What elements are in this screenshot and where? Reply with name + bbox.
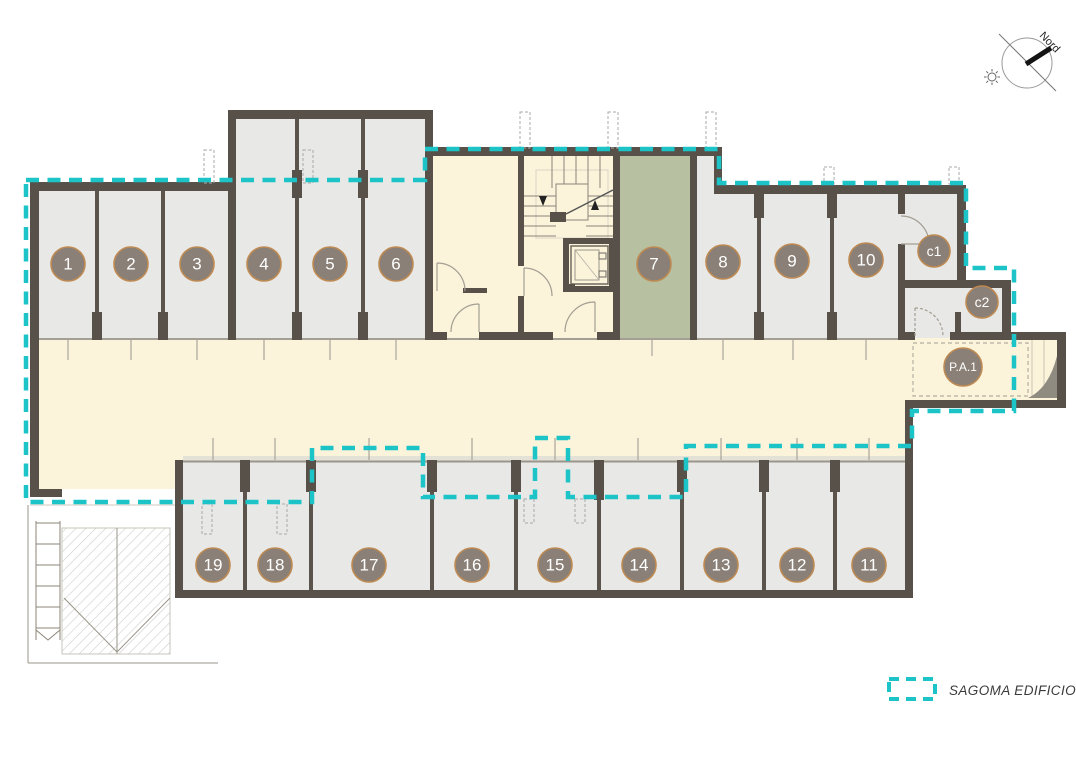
space-badge-15: 15 bbox=[538, 548, 572, 582]
space-badge-14: 14 bbox=[622, 548, 656, 582]
svg-text:14: 14 bbox=[630, 556, 649, 575]
legend-swatch bbox=[889, 679, 935, 699]
svg-text:12: 12 bbox=[788, 556, 807, 575]
space-badge-3: 3 bbox=[180, 247, 214, 281]
svg-text:17: 17 bbox=[360, 556, 379, 575]
exterior-stair-treads bbox=[36, 521, 60, 640]
space-badge-9: 9 bbox=[775, 244, 809, 278]
space-badge-8: 8 bbox=[706, 245, 740, 279]
legend: SAGOMA EDIFICIO bbox=[889, 679, 1076, 699]
space-badge-10: 10 bbox=[849, 243, 883, 277]
svg-text:8: 8 bbox=[718, 253, 727, 272]
svg-text:9: 9 bbox=[787, 252, 796, 271]
space-badge-13: 13 bbox=[704, 548, 738, 582]
space-badge-12: 12 bbox=[780, 548, 814, 582]
svg-text:c1: c1 bbox=[927, 243, 942, 259]
rooms-4-6-area bbox=[228, 110, 433, 340]
space-badge-16: 16 bbox=[455, 548, 489, 582]
svg-text:3: 3 bbox=[192, 255, 201, 274]
space-badge-1: 1 bbox=[51, 247, 85, 281]
space-badge-17: 17 bbox=[352, 548, 386, 582]
svg-text:6: 6 bbox=[391, 255, 400, 274]
space-badge-11: 11 bbox=[852, 548, 886, 582]
svg-text:10: 10 bbox=[857, 251, 876, 270]
elevator bbox=[563, 238, 615, 292]
svg-text:11: 11 bbox=[860, 556, 878, 575]
floor-plan-page: 1 2 3 4 5 6 7 8 9 10 c1 c2 P.A.1 11 12 1… bbox=[0, 0, 1076, 780]
svg-text:4: 4 bbox=[259, 255, 268, 274]
svg-text:2: 2 bbox=[126, 255, 135, 274]
car-ramp-hatched bbox=[62, 528, 170, 654]
svg-text:16: 16 bbox=[463, 556, 482, 575]
space-badge-4: 4 bbox=[247, 247, 281, 281]
space-badge-19: 19 bbox=[196, 548, 230, 582]
space-badge-2: 2 bbox=[114, 247, 148, 281]
space-badge-c2: c2 bbox=[966, 286, 998, 318]
space-badge-pa1: P.A.1 bbox=[944, 348, 982, 386]
space-badge-6: 6 bbox=[379, 247, 413, 281]
floor-plan-svg: 1 2 3 4 5 6 7 8 9 10 c1 c2 P.A.1 11 12 1… bbox=[0, 0, 1076, 780]
svg-text:19: 19 bbox=[204, 556, 223, 575]
compass-needle bbox=[1026, 48, 1051, 64]
compass: Nord bbox=[984, 30, 1062, 91]
svg-text:5: 5 bbox=[325, 255, 334, 274]
space-badge-5: 5 bbox=[313, 247, 347, 281]
svg-text:P.A.1: P.A.1 bbox=[949, 360, 977, 374]
svg-text:15: 15 bbox=[546, 556, 565, 575]
svg-text:c2: c2 bbox=[975, 294, 990, 310]
space-badge-c1: c1 bbox=[918, 235, 950, 267]
svg-text:1: 1 bbox=[63, 255, 72, 274]
space-badge-18: 18 bbox=[258, 548, 292, 582]
space-badge-7: 7 bbox=[637, 247, 671, 281]
svg-text:13: 13 bbox=[712, 556, 731, 575]
sun-icon bbox=[984, 69, 1000, 85]
legend-label: SAGOMA EDIFICIO bbox=[949, 683, 1076, 698]
svg-text:18: 18 bbox=[266, 556, 285, 575]
svg-text:7: 7 bbox=[649, 255, 658, 274]
